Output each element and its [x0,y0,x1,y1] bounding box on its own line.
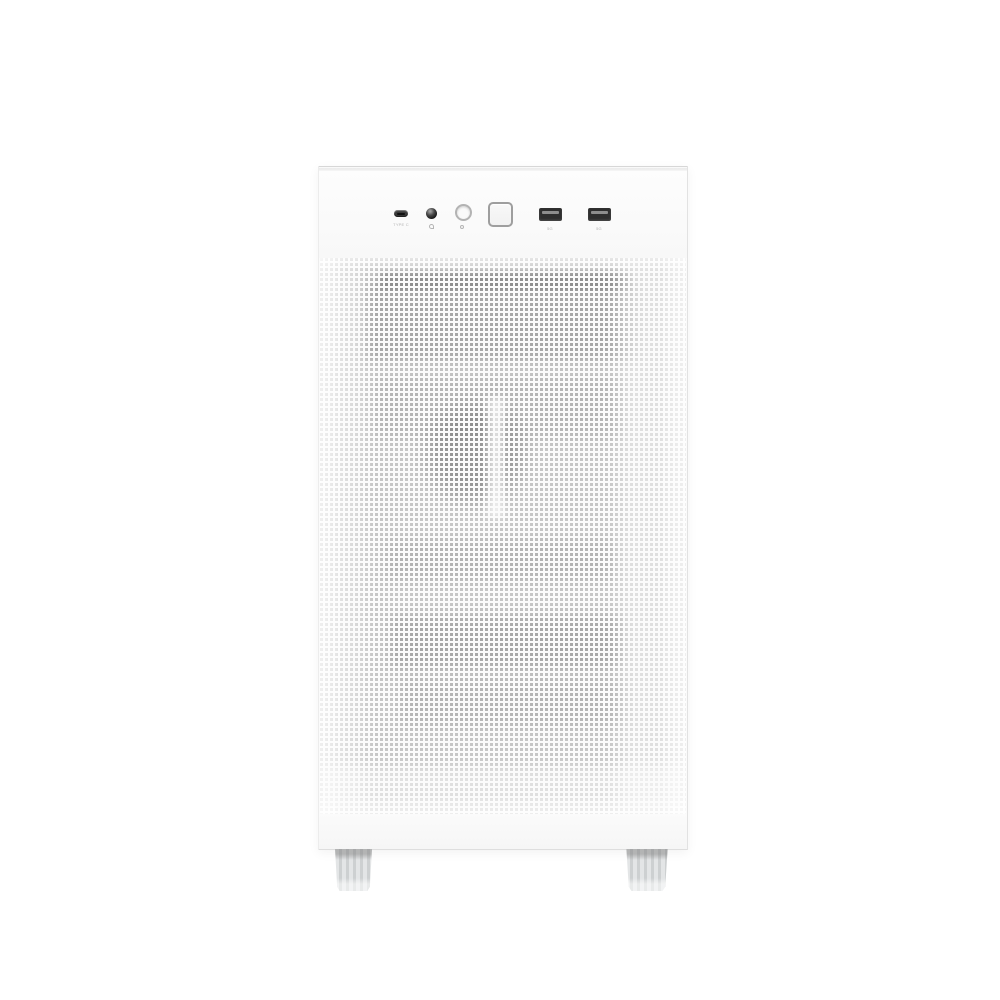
pc-case: TYPE C 5G 5G [318,166,688,850]
usb-a-tab [542,211,559,215]
usb-a-tab [591,211,608,215]
case-foot-left [332,849,375,891]
case-bottom-strip [319,814,687,850]
reset-icon [460,225,464,229]
usb-type-c-slot [397,213,405,215]
case-foot-right [623,849,671,891]
usb-type-c-port [394,210,408,217]
product-photo-stage: TYPE C 5G 5G [0,0,1000,1000]
usb-type-c-label: TYPE C [386,222,416,227]
usb-a-port-1 [539,208,562,221]
usb-a-label-2: 5G [584,226,614,231]
usb-a-label-1: 5G [535,226,565,231]
power-button [488,202,513,227]
usb-a-port-2 [588,208,611,221]
front-io-panel: TYPE C 5G 5G [319,171,687,258]
headset-icon [429,224,434,229]
reset-button [455,204,472,221]
mesh-panel [320,258,686,814]
headset-jack [426,208,437,219]
mesh-edge-fade [320,258,686,814]
